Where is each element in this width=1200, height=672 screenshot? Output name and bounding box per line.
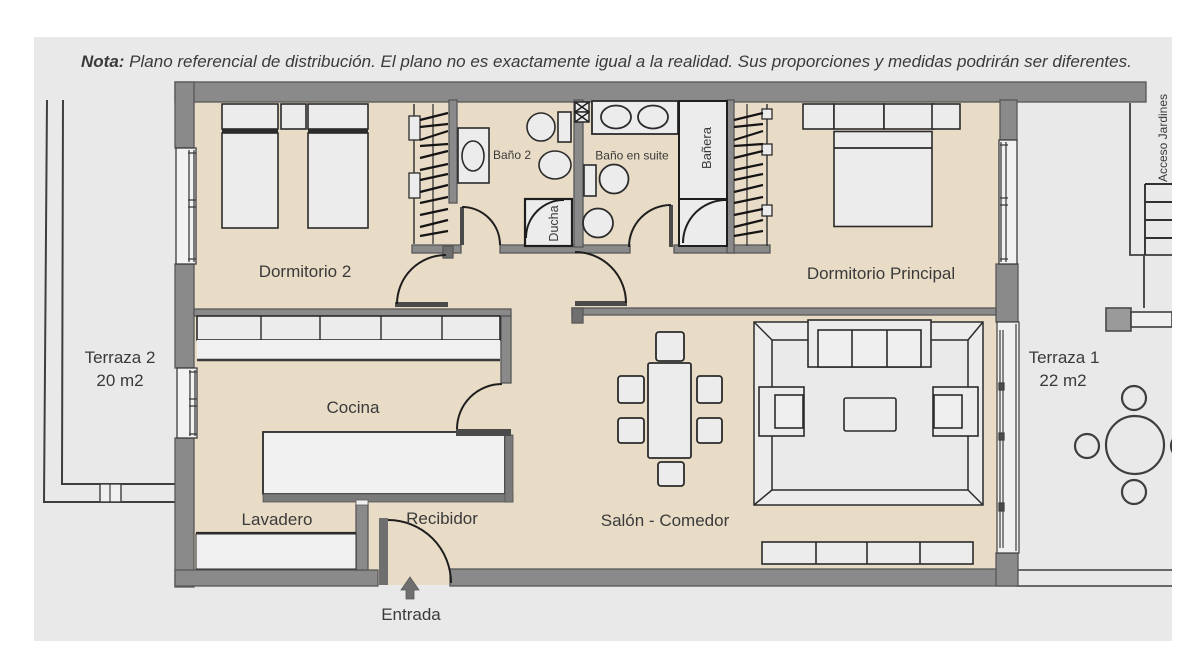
svg-text:Entrada: Entrada [381,605,441,624]
svg-text:Dormitorio 2: Dormitorio 2 [259,262,352,281]
svg-text:Lavadero: Lavadero [242,510,313,529]
svg-text:Terraza 2: Terraza 2 [85,348,156,367]
svg-text:Baño en suite: Baño en suite [595,149,669,163]
svg-text:Bañera: Bañera [699,126,714,169]
svg-text:Acceso Jardines: Acceso Jardines [1156,94,1170,182]
svg-text:Salón - Comedor: Salón - Comedor [601,511,730,530]
svg-text:20 m2: 20 m2 [96,371,143,390]
svg-text:Terraza 1: Terraza 1 [1029,348,1100,367]
svg-text:Dormitorio Principal: Dormitorio Principal [807,264,955,283]
svg-text:Ducha: Ducha [547,205,561,241]
svg-text:Baño 2: Baño 2 [493,148,531,162]
svg-text:Cocina: Cocina [327,398,380,417]
svg-text:22 m2: 22 m2 [1039,371,1086,390]
svg-text:Recibidor: Recibidor [406,509,478,528]
svg-text:Nota: Plano referencial de dis: Nota: Plano referencial de distribución.… [81,52,1132,71]
